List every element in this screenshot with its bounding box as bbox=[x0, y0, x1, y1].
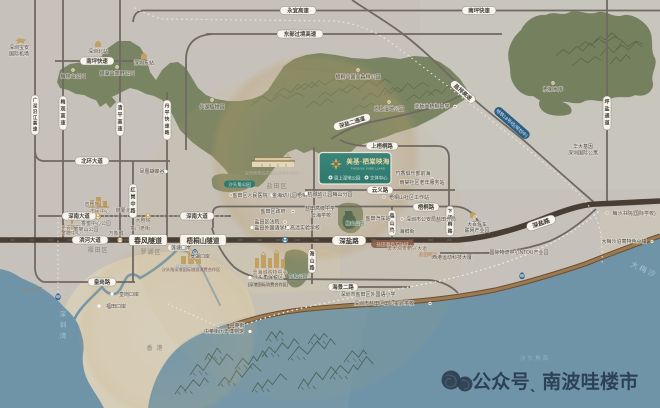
svg-text:梅山公园: 梅山公园 bbox=[346, 220, 365, 227]
svg-text:雨棠社区老年服务站: 雨棠社区老年服务站 bbox=[399, 179, 444, 186]
svg-text:盐田区政府: 盐田区政府 bbox=[260, 208, 285, 215]
svg-text:福田区: 福田区 bbox=[87, 246, 108, 254]
svg-text:盐田区法院: 盐田区法院 bbox=[254, 219, 279, 226]
svg-text:仙湖植物园: 仙湖植物园 bbox=[199, 104, 224, 111]
svg-text:皇岗口岸: 皇岗口岸 bbox=[119, 291, 139, 298]
svg-text:沙头角公园: 沙头角公园 bbox=[228, 181, 251, 188]
svg-text:丹平快速路: 丹平快速路 bbox=[164, 103, 170, 136]
svg-text:联网产业园: 联网产业园 bbox=[464, 227, 489, 234]
svg-text:云海学校: 云海学校 bbox=[311, 212, 331, 219]
svg-text:香蜜中心公园: 香蜜中心公园 bbox=[81, 220, 111, 227]
svg-text:南山区: 南山区 bbox=[22, 286, 43, 294]
svg-text:梧桐山隧道: 梧桐山隧道 bbox=[187, 236, 220, 245]
svg-text:音乐厅: 音乐厅 bbox=[84, 201, 99, 208]
svg-text:莲塘口岸: 莲塘口岸 bbox=[171, 245, 191, 252]
svg-text:盐田汽车站: 盐田汽车站 bbox=[365, 215, 390, 222]
svg-text:北师大梧桐中学: 北师大梧桐中学 bbox=[414, 103, 449, 110]
svg-text:罗湖口岸: 罗湖口岸 bbox=[190, 253, 210, 260]
svg-text:恩上湿地公园: 恩上湿地公园 bbox=[374, 106, 404, 113]
svg-text:深圳梧桐岛中英街度假村酒店: 深圳梧桐岛中英街度假村酒店 bbox=[245, 170, 299, 177]
svg-text:春风隧道: 春风隧道 bbox=[133, 236, 162, 245]
svg-text:公众号ˎ 南波哇楼市: 公众号ˎ 南波哇楼市 bbox=[472, 370, 639, 393]
svg-text:银湖山郊野公园: 银湖山郊野公园 bbox=[99, 70, 134, 77]
svg-text:罗湖区: 罗湖区 bbox=[140, 248, 161, 256]
svg-text:中英街: 中英街 bbox=[229, 322, 244, 329]
svg-text:香 港: 香 港 bbox=[147, 344, 164, 352]
svg-text:皇岗路: 皇岗路 bbox=[94, 278, 111, 286]
svg-text:深南大道: 深南大道 bbox=[186, 212, 208, 220]
svg-text:凤凰海湾二期: 凤凰海湾二期 bbox=[175, 263, 200, 270]
svg-text:盐田高级中学: 盐田高级中学 bbox=[305, 205, 335, 212]
svg-text:岗厦北: 岗厦北 bbox=[115, 207, 130, 214]
svg-text:海鲜街: 海鲜街 bbox=[399, 228, 414, 235]
svg-text:美基·栖棠映海: 美基·栖棠映海 bbox=[346, 157, 389, 166]
svg-text:云义路: 云义路 bbox=[372, 186, 389, 194]
svg-text:高清实验学校: 高清实验学校 bbox=[290, 225, 320, 232]
svg-text:深盐路: 深盐路 bbox=[339, 236, 359, 245]
svg-text:笔架山公园: 笔架山公园 bbox=[73, 226, 98, 233]
svg-text:沙头角海: 沙头角海 bbox=[520, 354, 550, 362]
svg-text:PHOENIX SURE LLAND: PHOENIX SURE LLAND bbox=[351, 167, 386, 171]
svg-text:永宜高速: 永宜高速 bbox=[286, 7, 309, 15]
svg-text:华大基因: 华大基因 bbox=[573, 143, 593, 150]
svg-text:南坪快速: 南坪快速 bbox=[86, 57, 108, 65]
svg-text:梧桐水库: 梧桐水库 bbox=[543, 86, 563, 93]
svg-text:盐田区人民医院: 盐田区人民医院 bbox=[232, 192, 267, 199]
svg-text:恩上湿地公园: 恩上湿地公园 bbox=[334, 175, 361, 182]
svg-text:南坪快速: 南坪快速 bbox=[468, 7, 490, 15]
svg-text:滨河大道: 滨河大道 bbox=[79, 236, 101, 244]
svg-text:深圳宝安: 深圳宝安 bbox=[9, 44, 29, 51]
svg-text:国际机场: 国际机场 bbox=[9, 51, 29, 58]
svg-text:东门老街: 东门老街 bbox=[130, 225, 150, 232]
svg-text:东部过境高速: 东部过境高速 bbox=[284, 30, 317, 38]
svg-text:梅林山公园: 梅林山公园 bbox=[60, 73, 85, 80]
svg-text:北环大道: 北环大道 bbox=[81, 157, 103, 165]
svg-text:上梧桐路: 上梧桐路 bbox=[371, 142, 393, 150]
svg-text:深圳湾: 深圳湾 bbox=[60, 309, 67, 340]
svg-text:西港运动科技大厦: 西港运动科技大厦 bbox=[432, 254, 472, 261]
svg-text:竹香俱乐部前海: 竹香俱乐部前海 bbox=[395, 170, 430, 177]
svg-text:梧桐山社区工作站: 梧桐山社区工作站 bbox=[389, 194, 429, 201]
svg-text:国际物流中心NTOU产业园: 国际物流中心NTOU产业园 bbox=[489, 249, 548, 256]
svg-text:海景二路: 海景二路 bbox=[332, 283, 354, 291]
svg-text:深圳市盐田区田心实验学校: 深圳市盐田区田心实验学校 bbox=[354, 300, 414, 307]
svg-text:凤凰蝴蝶谷: 凤凰蝴蝶谷 bbox=[139, 168, 164, 175]
svg-text:盐田外国语学校: 盐田外国语学校 bbox=[254, 225, 289, 232]
svg-text:中英街历史博物馆: 中英街历史博物馆 bbox=[204, 328, 244, 335]
svg-text:梧桐路: 梧桐路 bbox=[418, 203, 435, 211]
svg-text:盐田区: 盐田区 bbox=[266, 182, 287, 190]
svg-text:福田口岸: 福田口岸 bbox=[106, 303, 126, 310]
svg-text:深圳市公安局盐田分局: 深圳市公安局盐田分局 bbox=[406, 216, 456, 223]
svg-text:深南大道: 深南大道 bbox=[68, 212, 90, 220]
svg-text:梧桐山国家森林公园: 梧桐山国家森林公园 bbox=[335, 74, 380, 81]
svg-text:大百汇车: 大百汇车 bbox=[467, 221, 487, 228]
svg-text:深圳国际公寓: 深圳国际公寓 bbox=[568, 150, 598, 157]
svg-text:壹海城购物中心: 壹海城购物中心 bbox=[252, 269, 287, 276]
svg-text:广深沿江高速: 广深沿江高速 bbox=[33, 97, 38, 133]
svg-text:深圳东站: 深圳东站 bbox=[134, 60, 154, 67]
svg-text:东和公园: 东和公园 bbox=[289, 273, 308, 280]
svg-text:市民中心: 市民中心 bbox=[90, 208, 110, 215]
svg-text:勇大润发鹏兴大道: 勇大润发鹏兴大道 bbox=[387, 245, 427, 252]
svg-text:杭城幼儿园梅山分园: 杭城幼儿园梅山分园 bbox=[307, 191, 352, 198]
svg-text:大剧院: 大剧院 bbox=[135, 217, 150, 224]
svg-text:梅沙书院(国际学校): 梅沙书院(国际学校) bbox=[612, 210, 656, 217]
svg-text:大梅沙泊寓特色小镇: 大梅沙泊寓特色小镇 bbox=[601, 238, 646, 245]
svg-text:深圳市盐田区外国语小学: 深圳市盐田区外国语小学 bbox=[340, 291, 395, 298]
svg-text:深圳北站: 深圳北站 bbox=[88, 48, 108, 55]
svg-text:(深港国际消费合作区): (深港国际消费合作区) bbox=[248, 281, 289, 288]
svg-text:文体中心: 文体中心 bbox=[370, 175, 388, 182]
svg-text:万象城: 万象城 bbox=[108, 230, 123, 237]
